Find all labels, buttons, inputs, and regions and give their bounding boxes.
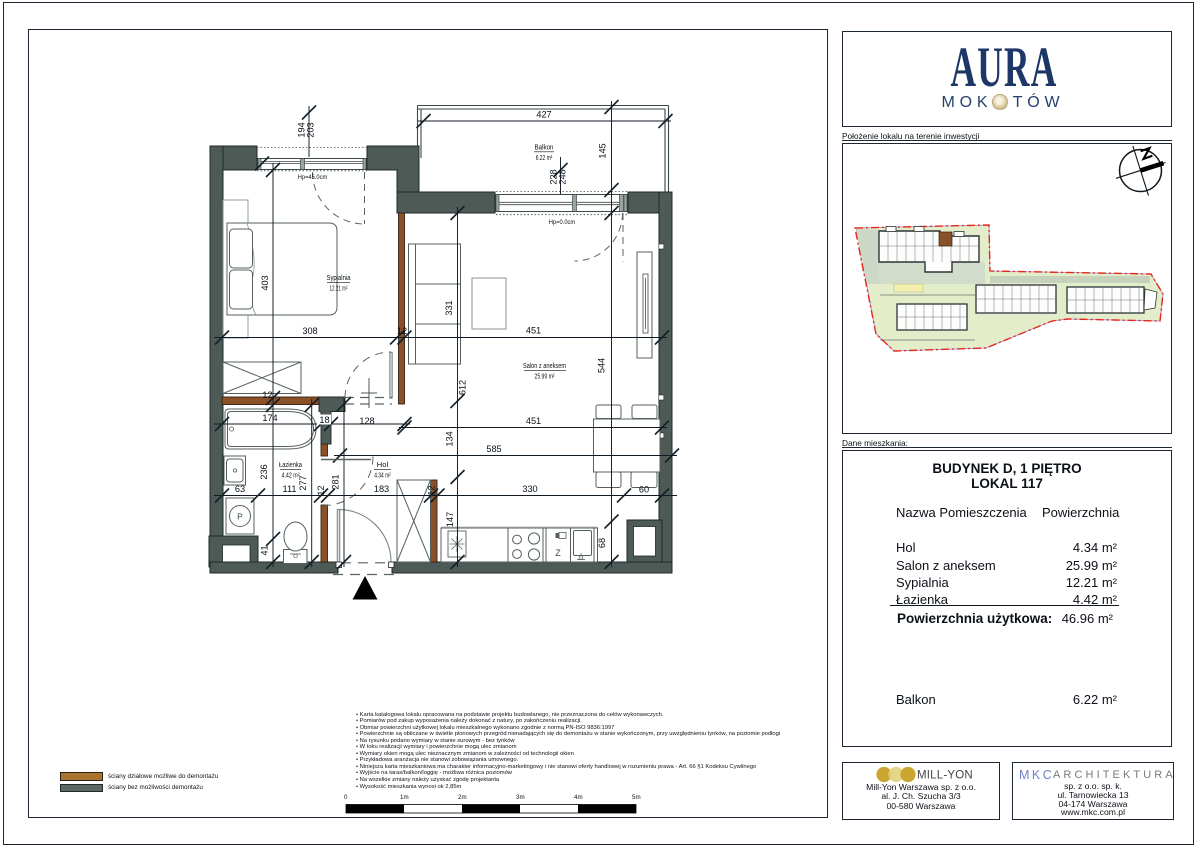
svg-text:451: 451 (526, 416, 541, 426)
svg-text:12: 12 (427, 485, 437, 495)
svg-text:63: 63 (235, 484, 245, 494)
svg-text:147: 147 (445, 512, 455, 527)
svg-text:Z: Z (555, 548, 561, 558)
svg-text:4m: 4m (574, 794, 583, 801)
svg-text:128: 128 (359, 416, 374, 426)
svg-text:1m: 1m (400, 794, 409, 801)
svg-text:330: 330 (522, 484, 537, 494)
svg-text:134: 134 (445, 431, 455, 446)
svg-text:Hp=45.0cm: Hp=45.0cm (298, 174, 328, 181)
svg-text:12: 12 (262, 390, 272, 400)
svg-text:111: 111 (283, 484, 297, 494)
svg-text:174: 174 (262, 413, 277, 423)
svg-text:277: 277 (298, 475, 308, 490)
svg-text:585: 585 (486, 444, 501, 454)
svg-text:544: 544 (597, 358, 607, 373)
svg-text:60: 60 (639, 485, 649, 495)
svg-text:4.42 m²: 4.42 m² (282, 473, 301, 480)
svg-text:18: 18 (319, 415, 329, 425)
svg-text:Balkon: Balkon (535, 143, 554, 152)
svg-text:308: 308 (302, 326, 317, 336)
svg-text:MILL-YON: MILL-YON (917, 770, 973, 782)
svg-text:612: 612 (458, 380, 468, 395)
svg-text:25.99 m²: 25.99 m² (535, 374, 555, 381)
svg-text:12.21 m²: 12.21 m² (330, 286, 348, 293)
svg-text:3m: 3m (516, 794, 525, 801)
svg-text:41: 41 (260, 545, 270, 555)
svg-text:4.34 m²: 4.34 m² (374, 473, 391, 480)
svg-text:Salon z aneksem: Salon z aneksem (523, 361, 566, 370)
svg-text:Hp=0.0cm: Hp=0.0cm (549, 219, 576, 226)
svg-text:281: 281 (331, 474, 341, 489)
svg-text:403: 403 (260, 275, 270, 290)
svg-text:Sypialnia: Sypialnia (327, 273, 352, 282)
svg-text:5m: 5m (632, 794, 641, 801)
svg-text:2m: 2m (458, 794, 467, 801)
svg-text:451: 451 (526, 326, 541, 336)
svg-text:Hol: Hol (377, 460, 389, 469)
svg-text:Łazienka: Łazienka (279, 460, 303, 469)
svg-text:P: P (237, 512, 243, 522)
svg-text:203: 203 (306, 122, 316, 137)
svg-text:6.22 m²: 6.22 m² (536, 155, 553, 162)
svg-text:183: 183 (374, 484, 389, 494)
svg-text:12: 12 (397, 326, 407, 336)
svg-text:427: 427 (536, 110, 551, 120)
svg-text:248: 248 (558, 169, 568, 184)
svg-text:236: 236 (259, 464, 269, 479)
svg-text:331: 331 (444, 300, 454, 315)
svg-text:145: 145 (598, 143, 608, 158)
svg-text:12: 12 (316, 485, 326, 495)
svg-text:68: 68 (597, 538, 607, 548)
svg-text:0: 0 (344, 794, 348, 801)
